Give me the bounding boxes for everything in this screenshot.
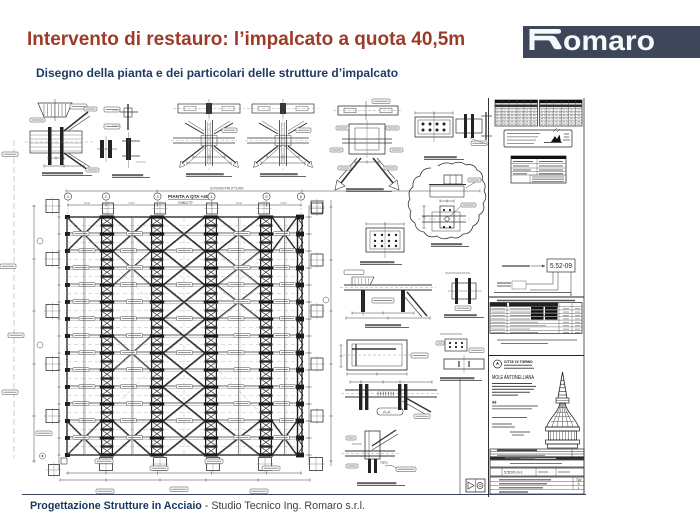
svg-text:A8: A8	[492, 401, 496, 405]
svg-text:5440: 5440	[84, 201, 91, 205]
svg-text:5.52-09: 5.52-09	[550, 261, 572, 270]
svg-text:CITTA’ DI TORINO: CITTA’ DI TORINO	[504, 360, 533, 364]
svg-text:SOVRASTRUTTURA: SOVRASTRUTTURA	[210, 187, 244, 191]
svg-text:5.52/01-S-1: 5.52/01-S-1	[504, 471, 523, 475]
svg-text:TIPO: TIPO	[380, 461, 388, 465]
svg-text:5440: 5440	[181, 201, 188, 205]
svg-text:A-A: A-A	[383, 410, 391, 415]
svg-text:5440: 5440	[129, 201, 136, 205]
svg-text:MOLE ANTONELLIANA: MOLE ANTONELLIANA	[492, 375, 534, 381]
svg-text:5440: 5440	[281, 201, 288, 205]
svg-text:1: 1	[578, 486, 580, 490]
svg-text:5440: 5440	[236, 201, 243, 205]
